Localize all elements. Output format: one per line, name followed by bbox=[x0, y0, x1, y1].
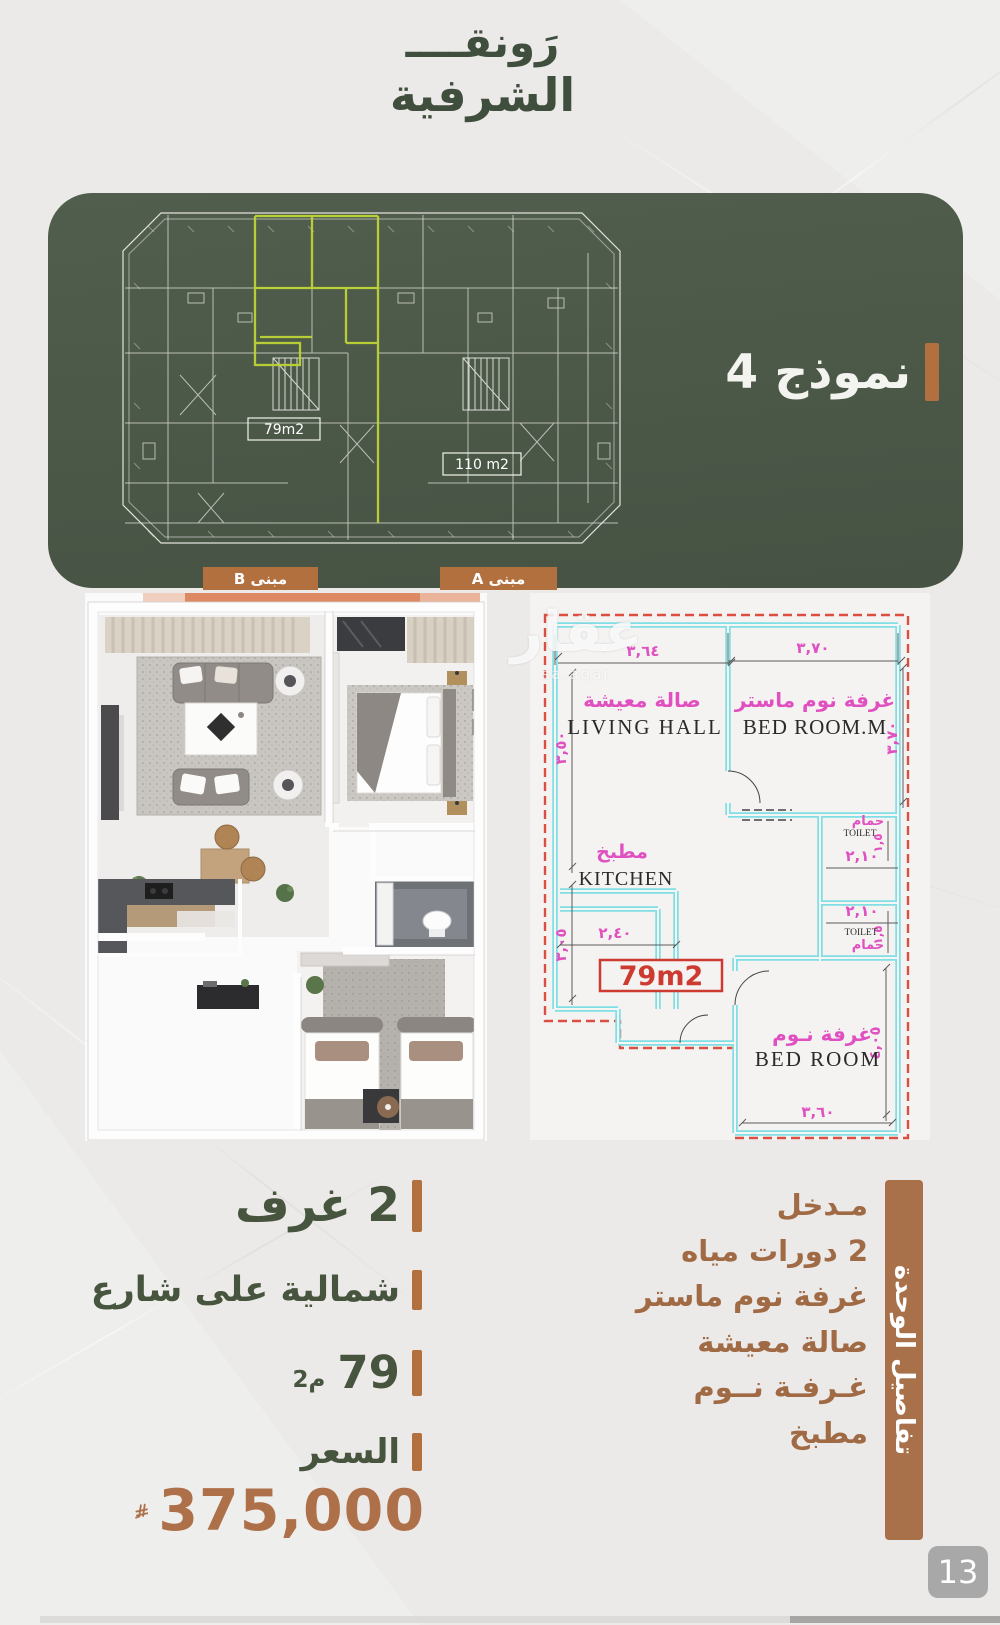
dim-bed-bottom: ٣,٦٠ bbox=[801, 1103, 834, 1121]
building-a-label: مبنى A bbox=[440, 567, 557, 590]
detail-item-kitchen: مطبخ bbox=[528, 1411, 868, 1457]
kitchen-label-en: KITCHEN bbox=[579, 868, 674, 890]
footer-strip-light bbox=[40, 1616, 790, 1623]
model-title: نموذج 4 bbox=[725, 345, 911, 400]
unit-details-sidebar: تفاصيل الوحدة bbox=[885, 1180, 923, 1540]
page-number-badge: 13 bbox=[928, 1546, 988, 1598]
spec-accent-bar bbox=[412, 1350, 422, 1396]
bedroom-label-en: BED ROOM bbox=[755, 1047, 881, 1071]
brochure-page: { "logo": { "line1": "رَونقــــ", "line2… bbox=[0, 0, 1000, 1625]
master-bedroom-label-ar: غرفة نوم ماستر bbox=[734, 688, 895, 712]
page-number: 13 bbox=[938, 1553, 979, 1591]
apartment-2d-plan: ٣,٦٤ ٣,٧٠ ٣,٥٠ ٣,٠٥ ٣,٧٠ ٢,١٠ ٢,١٠ ١,٥ ١… bbox=[530, 593, 930, 1140]
detail-item-bedroom: غـرفـة نــوم bbox=[528, 1365, 868, 1411]
spec-price-label-row: السعر bbox=[301, 1432, 422, 1472]
site-area-b-label: 79m2 bbox=[264, 422, 304, 438]
building-b-label: مبنى B bbox=[203, 567, 318, 590]
price-label: السعر bbox=[301, 1432, 400, 1472]
price-row: 375,000 bbox=[135, 1478, 425, 1544]
dim-left-lower: ٣,٠٥ bbox=[552, 928, 570, 961]
toilet2-label-ar: حمام bbox=[852, 938, 885, 953]
detail-item-living-hall: صالة معيشة bbox=[528, 1320, 868, 1366]
toilet1-label-ar: حمام bbox=[852, 814, 885, 829]
spec-orientation-row: شمالية على شارع bbox=[91, 1270, 422, 1310]
model-banner: نموذج 4 bbox=[725, 343, 939, 401]
dim-top-left: ٣,٦٤ bbox=[626, 642, 659, 660]
spec-accent-bar bbox=[412, 1270, 422, 1310]
brand-logo-line1: رَونقــــ bbox=[370, 18, 595, 68]
model-accent-bar bbox=[925, 343, 939, 401]
spec-area-value: 79 bbox=[337, 1346, 400, 1399]
saudi-riyal-icon bbox=[135, 1483, 148, 1539]
bedroom-label-ar: غرفة نـوم bbox=[772, 1022, 872, 1046]
detail-item-master-bedroom: غرفة نوم ماستر bbox=[528, 1274, 868, 1320]
brand-logo-line2: الشرفية bbox=[370, 68, 595, 122]
spec-accent-bar bbox=[412, 1180, 422, 1232]
brand-logo: رَونقــــ الشرفية bbox=[370, 18, 595, 122]
spec-area-unit: م2 bbox=[293, 1367, 326, 1399]
toilet1-label-en: TOILET bbox=[843, 829, 876, 839]
dim-toilet-w2: ٢,١٠ bbox=[845, 902, 878, 920]
spec-accent-bar bbox=[412, 1433, 422, 1471]
price-value: 375,000 bbox=[158, 1478, 425, 1544]
master-bedroom-label-en: BED ROOM.M bbox=[743, 715, 887, 739]
living-hall-label-ar: صالة معيشة bbox=[583, 688, 701, 712]
dim-kitchen: ٢,٤٠ bbox=[598, 924, 631, 942]
dim-top-right: ٣,٧٠ bbox=[796, 639, 829, 657]
spec-rooms-text: 2 غرف bbox=[235, 1178, 400, 1233]
spec-area-row: 79 م2 bbox=[293, 1346, 423, 1399]
detail-item-entrance: مـدخل bbox=[528, 1183, 868, 1229]
living-hall-label-en: LIVING HALL bbox=[567, 715, 723, 739]
kitchen-label-ar: مطبخ bbox=[596, 841, 648, 863]
area-badge: 79m2 bbox=[600, 960, 722, 992]
footer-strip-dark bbox=[790, 1616, 1000, 1623]
spec-rooms-row: 2 غرف bbox=[235, 1178, 422, 1233]
site-plan-panel: 79m2 110 m2 نموذج 4 bbox=[48, 193, 963, 588]
unit-details-list: مـدخل 2 دورات مياه غرفة نوم ماستر صالة م… bbox=[528, 1183, 868, 1456]
spec-orientation-text: شمالية على شارع bbox=[91, 1270, 400, 1310]
area-badge-text: 79m2 bbox=[619, 961, 704, 992]
site-area-a-label: 110 m2 bbox=[455, 457, 509, 473]
apartment-3d-render bbox=[85, 593, 487, 1141]
unit-details-sidebar-title: تفاصيل الوحدة bbox=[889, 1265, 919, 1455]
toilet2-label-en: TOILET bbox=[844, 928, 877, 938]
detail-item-bathrooms: 2 دورات مياه bbox=[528, 1229, 868, 1275]
